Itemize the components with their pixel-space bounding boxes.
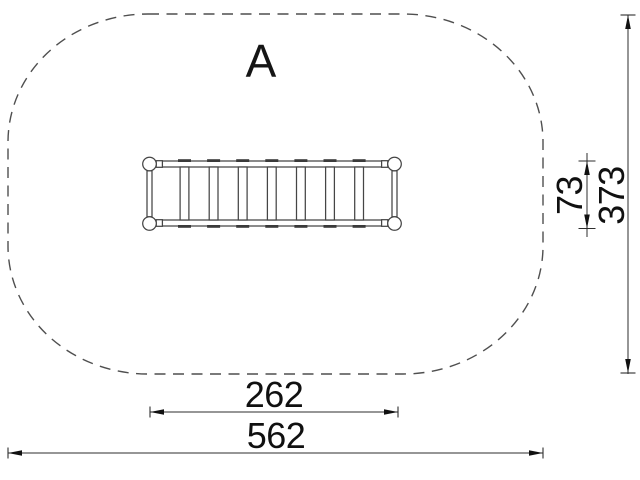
arrowhead-down	[625, 359, 631, 373]
ladder-top-view	[143, 157, 402, 230]
dimension-zone-length: 562	[8, 415, 543, 459]
ladder-rung	[209, 167, 218, 220]
arrowhead-left	[8, 450, 22, 456]
arrowhead-left	[150, 409, 164, 415]
dimension-value-562: 562	[247, 415, 306, 456]
arrowhead-up	[625, 15, 631, 29]
dimension-value-73: 73	[549, 176, 590, 215]
right-end-tube	[392, 171, 397, 217]
technical-drawing: A	[0, 0, 640, 480]
arrowhead-down	[584, 215, 590, 229]
ladder-rung	[267, 167, 276, 220]
rail-clamp	[382, 161, 388, 168]
arrowhead-up	[584, 161, 590, 175]
ladder-rung	[297, 167, 306, 220]
dimension-zone-width: 373	[591, 15, 636, 374]
corner-post	[388, 157, 402, 171]
dimension-value-262: 262	[245, 374, 304, 415]
dimension-equipment-length: 262	[150, 374, 398, 418]
ladder-rung	[180, 167, 189, 220]
corner-post	[143, 217, 157, 231]
arrowhead-right	[529, 450, 543, 456]
rail-clamp	[156, 161, 162, 168]
view-label: A	[246, 35, 277, 87]
rail-clamp	[156, 220, 162, 227]
ladder-rung	[238, 167, 247, 220]
dimension-equipment-width: 73	[549, 153, 596, 237]
ladder-rung	[355, 167, 364, 220]
drawing-canvas: A	[0, 0, 640, 480]
ladder-rung	[326, 167, 335, 220]
corner-post	[143, 157, 157, 171]
left-end-tube	[147, 171, 152, 217]
corner-post	[388, 217, 402, 231]
rail-clamp	[382, 220, 388, 227]
arrowhead-right	[384, 409, 398, 415]
dimension-value-373: 373	[591, 166, 632, 225]
ladder-rungs	[180, 167, 363, 220]
